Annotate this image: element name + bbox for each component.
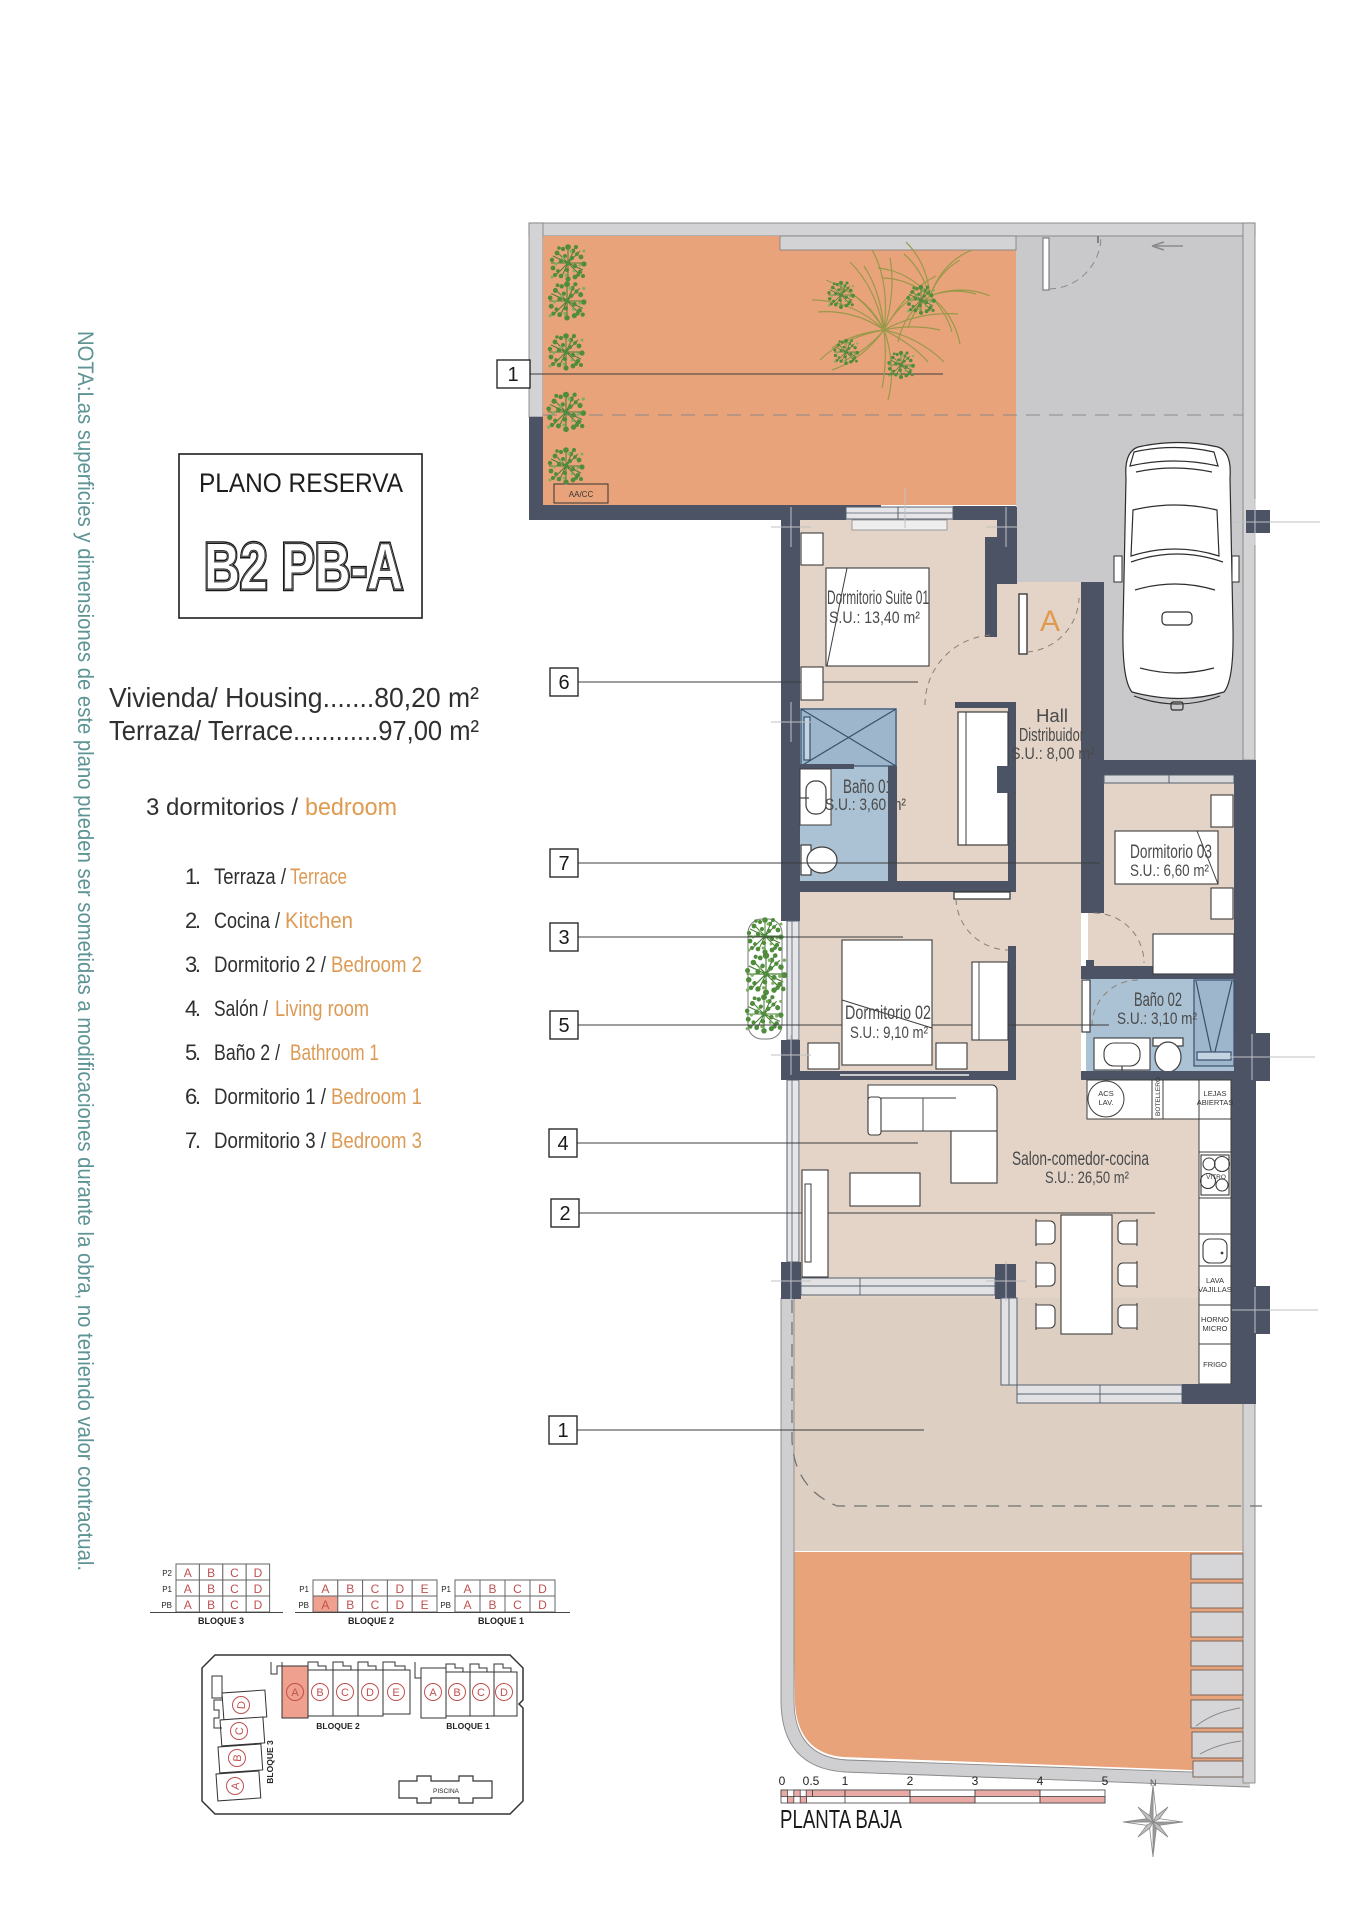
svg-text:Distribuidor: Distribuidor [1019, 725, 1084, 745]
svg-text:B: B [232, 1754, 245, 1762]
svg-text:Salón /: Salón / [214, 996, 269, 1021]
svg-text:7: 7 [558, 853, 569, 875]
svg-text:Dormitorio 02: Dormitorio 02 [845, 1003, 931, 1024]
svg-text:P1: P1 [441, 1585, 451, 1594]
svg-text:B: B [453, 1687, 460, 1699]
svg-text:Terraza /: Terraza / [214, 864, 287, 889]
svg-text:A: A [184, 1566, 192, 1580]
svg-text:4.: 4. [185, 996, 201, 1021]
svg-text:VAJILLAS: VAJILLAS [1198, 1285, 1232, 1294]
svg-text:D: D [254, 1582, 263, 1596]
svg-text:D: D [500, 1687, 508, 1699]
svg-text:S.U.: 9,10 m²: S.U.: 9,10 m² [850, 1023, 928, 1042]
svg-text:Salon-comedor-cocina: Salon-comedor-cocina [1012, 1149, 1149, 1170]
svg-text:C: C [230, 1566, 239, 1580]
svg-text:BLOQUE 3: BLOQUE 3 [198, 1616, 244, 1626]
svg-text:PLANO RESERVA: PLANO RESERVA [199, 468, 403, 498]
svg-text:BLOQUE 1: BLOQUE 1 [446, 1721, 490, 1731]
svg-text:B2 PB-A: B2 PB-A [204, 529, 403, 603]
svg-text:D: D [366, 1687, 374, 1699]
svg-text:Bathroom 1: Bathroom 1 [290, 1040, 379, 1065]
svg-text:0: 0 [779, 1774, 786, 1788]
svg-text:7.: 7. [185, 1128, 201, 1153]
svg-text:A: A [321, 1582, 329, 1596]
svg-text:A: A [429, 1687, 437, 1699]
svg-text:S.U.: 6,60 m²: S.U.: 6,60 m² [1130, 861, 1209, 880]
svg-text:AA/CC: AA/CC [569, 490, 594, 499]
svg-text:Bedroom 1: Bedroom 1 [331, 1084, 422, 1109]
svg-text:B: B [207, 1582, 215, 1596]
svg-text:BLOQUE 2: BLOQUE 2 [316, 1721, 360, 1731]
svg-text:P2: P2 [162, 1569, 172, 1578]
svg-text:LEJAS: LEJAS [1204, 1089, 1227, 1098]
svg-text:D: D [538, 1582, 547, 1596]
svg-text:6.: 6. [185, 1084, 201, 1109]
svg-text:BLOQUE 2: BLOQUE 2 [348, 1616, 394, 1626]
svg-text:Hall: Hall [1036, 706, 1068, 726]
svg-text:VITRO: VITRO [1206, 1174, 1226, 1181]
svg-text:LAVA: LAVA [1206, 1276, 1224, 1285]
svg-text:B: B [346, 1582, 354, 1596]
svg-text:NOTA:Las superficies y dimensi: NOTA:Las superficies y dimensiones de es… [73, 331, 98, 1571]
svg-text:PB: PB [440, 1601, 451, 1610]
svg-text:D: D [254, 1598, 263, 1612]
svg-text:6: 6 [558, 672, 569, 694]
svg-text:Baño 2 /: Baño 2 / [214, 1040, 281, 1065]
svg-text:FRIGO: FRIGO [1203, 1360, 1227, 1369]
svg-text:D: D [395, 1598, 404, 1612]
svg-text:P1: P1 [299, 1585, 309, 1594]
svg-text:HORNO: HORNO [1201, 1315, 1229, 1324]
svg-text:BOTELLERO: BOTELLERO [1155, 1077, 1162, 1116]
svg-text:C: C [477, 1687, 485, 1699]
svg-text:B: B [207, 1566, 215, 1580]
svg-text:Dormitorio 2 /: Dormitorio 2 / [214, 952, 327, 977]
svg-text:2: 2 [559, 1203, 570, 1225]
svg-text:1.: 1. [185, 864, 201, 889]
svg-text:Kitchen: Kitchen [285, 908, 353, 933]
svg-text:1: 1 [507, 364, 518, 386]
svg-text:Cocina /: Cocina / [214, 908, 281, 933]
svg-text:LAV.: LAV. [1098, 1098, 1113, 1107]
svg-text:B: B [488, 1582, 496, 1596]
svg-text:5: 5 [1102, 1774, 1109, 1788]
svg-text:Dormitorio Suite 01: Dormitorio Suite 01 [827, 588, 929, 609]
svg-text:S.U.: 3,10 m²: S.U.: 3,10 m² [1117, 1009, 1197, 1028]
svg-text:4: 4 [557, 1133, 568, 1155]
svg-text:ACS: ACS [1098, 1089, 1113, 1098]
svg-text:Bedroom 3: Bedroom 3 [331, 1128, 422, 1153]
svg-text:E: E [421, 1598, 429, 1612]
svg-text:1: 1 [842, 1774, 849, 1788]
svg-text:0.5: 0.5 [803, 1774, 820, 1788]
svg-text:D: D [395, 1582, 404, 1596]
svg-text:Terrace: Terrace [290, 864, 347, 889]
svg-text:A: A [184, 1582, 192, 1596]
svg-text:E: E [392, 1687, 399, 1699]
svg-text:S.U.: 8,00 m²: S.U.: 8,00 m² [1011, 744, 1095, 763]
svg-text:P1: P1 [162, 1585, 172, 1594]
svg-text:PB: PB [298, 1601, 309, 1610]
svg-text:Bedroom 2: Bedroom 2 [331, 952, 422, 977]
svg-text:Dormitorio 1 /: Dormitorio 1 / [214, 1084, 327, 1109]
svg-text:B: B [207, 1598, 215, 1612]
svg-text:S.U.: 26,50 m²: S.U.: 26,50 m² [1045, 1168, 1129, 1187]
svg-text:A: A [463, 1598, 471, 1612]
svg-text:C: C [513, 1598, 522, 1612]
svg-text:B: B [346, 1598, 354, 1612]
svg-text:PLANTA BAJA: PLANTA BAJA [780, 1804, 902, 1834]
svg-text:E: E [421, 1582, 429, 1596]
svg-text:PISCINA: PISCINA [433, 1788, 460, 1795]
svg-text:D: D [254, 1566, 263, 1580]
svg-text:A: A [1040, 605, 1060, 638]
svg-text:A: A [184, 1598, 192, 1612]
svg-text:Dormitorio 3 /: Dormitorio 3 / [214, 1128, 327, 1153]
svg-text:5: 5 [558, 1015, 569, 1037]
svg-text:Terraza/ Terrace............97: Terraza/ Terrace............97,00 m² [109, 715, 479, 746]
svg-text:B: B [488, 1598, 496, 1612]
svg-text:3.: 3. [185, 952, 201, 977]
svg-text:D: D [538, 1598, 547, 1612]
svg-text:C: C [341, 1687, 349, 1699]
svg-text:A: A [463, 1582, 471, 1596]
svg-text:S.U.: 13,40 m²: S.U.: 13,40 m² [829, 608, 920, 627]
svg-text:C: C [230, 1598, 239, 1612]
svg-text:Living room: Living room [275, 996, 369, 1021]
svg-text:PB: PB [161, 1601, 172, 1610]
svg-text:ABIERTAS: ABIERTAS [1197, 1098, 1233, 1107]
svg-text:Baño 02: Baño 02 [1134, 990, 1182, 1011]
svg-text:2.: 2. [185, 908, 201, 933]
svg-text:C: C [371, 1598, 380, 1612]
svg-text:BLOQUE 1: BLOQUE 1 [478, 1616, 524, 1626]
svg-text:A: A [321, 1598, 329, 1612]
svg-text:C: C [371, 1582, 380, 1596]
svg-text:3: 3 [558, 927, 569, 949]
svg-text:5.: 5. [185, 1040, 201, 1065]
svg-text:2: 2 [907, 1774, 914, 1788]
svg-text:Dormitorio 03: Dormitorio 03 [1130, 842, 1212, 863]
svg-text:1: 1 [557, 1420, 568, 1442]
svg-text:A: A [291, 1687, 299, 1699]
svg-text:C: C [234, 1727, 247, 1736]
svg-text:3 dormitorios /: 3 dormitorios / [146, 794, 298, 821]
svg-text:B: B [316, 1687, 323, 1699]
svg-text:bedroom: bedroom [305, 794, 397, 821]
svg-text:C: C [230, 1582, 239, 1596]
svg-text:C: C [513, 1582, 522, 1596]
svg-text:Vivienda/ Housing.......80,20: Vivienda/ Housing.......80,20 m² [109, 682, 479, 713]
svg-text:4: 4 [1037, 1774, 1044, 1788]
svg-text:D: D [236, 1701, 249, 1710]
svg-text:3: 3 [972, 1774, 979, 1788]
svg-text:MICRO: MICRO [1203, 1324, 1228, 1333]
svg-text:BLOQUE 3: BLOQUE 3 [265, 1740, 275, 1784]
